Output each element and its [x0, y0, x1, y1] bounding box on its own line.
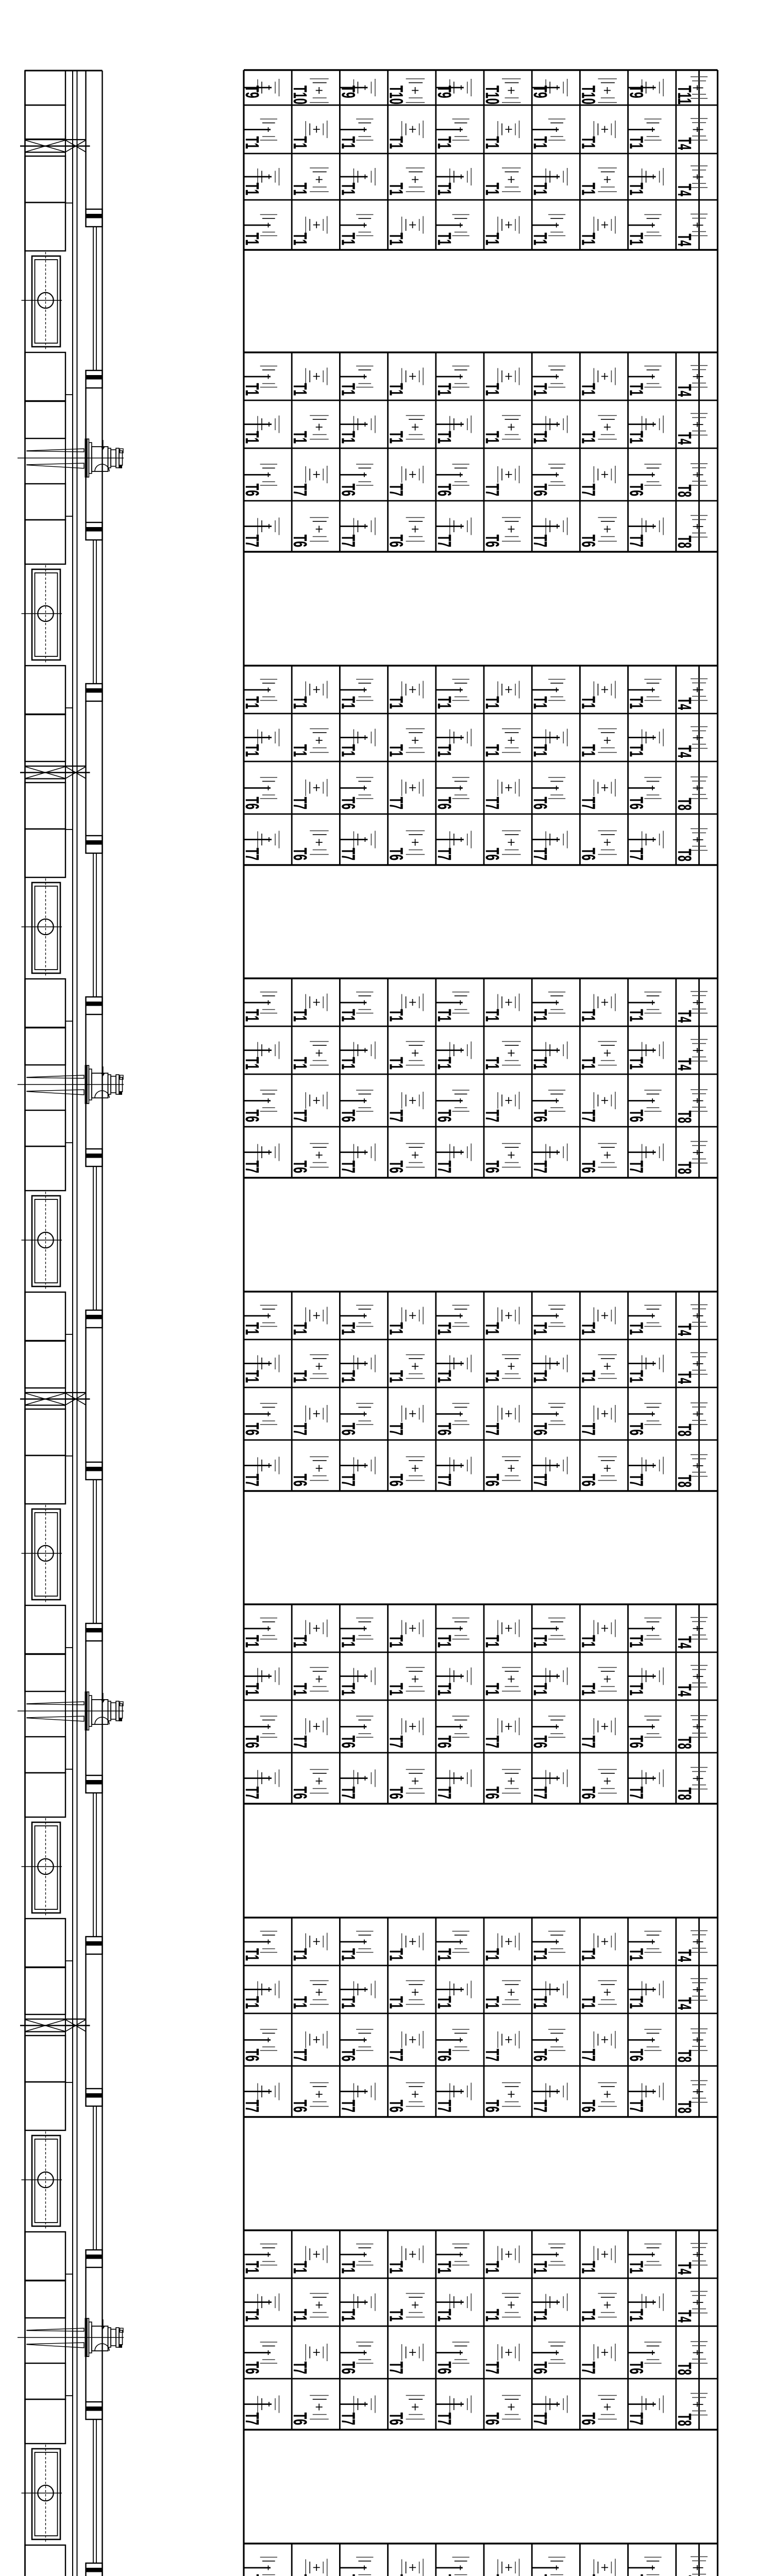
svg-text:T1: T1 [338, 1057, 359, 1070]
svg-text:T6: T6 [626, 1736, 647, 1748]
svg-text:T6: T6 [626, 2049, 647, 2061]
svg-text:T1: T1 [482, 697, 503, 709]
svg-text:T6: T6 [626, 2362, 647, 2374]
svg-text:T1: T1 [338, 2309, 359, 2321]
svg-text:T7: T7 [578, 2049, 599, 2061]
svg-text:T1: T1 [242, 2309, 263, 2321]
svg-text:T6: T6 [434, 2049, 455, 2061]
svg-text:T1: T1 [242, 2574, 263, 2576]
svg-text:T7: T7 [386, 2362, 407, 2374]
svg-text:T1: T1 [626, 2574, 647, 2576]
svg-text:T10: T10 [290, 86, 311, 105]
svg-text:T8: T8 [674, 798, 695, 810]
svg-text:T1: T1 [242, 431, 263, 444]
svg-text:T8: T8 [674, 2050, 695, 2062]
svg-text:T11: T11 [674, 86, 695, 105]
svg-text:T4: T4 [674, 384, 695, 397]
svg-text:T6: T6 [242, 2049, 263, 2061]
svg-text:T1: T1 [290, 1683, 311, 1696]
svg-text:T1: T1 [578, 2574, 599, 2576]
svg-text:T6: T6 [386, 2100, 407, 2112]
svg-text:T1: T1 [242, 2261, 263, 2274]
svg-text:T6: T6 [434, 2362, 455, 2374]
svg-text:T7: T7 [626, 535, 647, 547]
svg-text:T1: T1 [386, 383, 407, 396]
svg-text:T1: T1 [434, 383, 455, 396]
svg-text:T1: T1 [386, 1370, 407, 1383]
svg-text:T1: T1 [434, 1996, 455, 2009]
svg-text:T7: T7 [242, 848, 263, 860]
svg-text:T1: T1 [626, 1683, 647, 1696]
svg-text:T7: T7 [626, 1161, 647, 1173]
svg-text:T1: T1 [434, 2261, 455, 2274]
svg-text:T7: T7 [338, 1161, 359, 1173]
svg-text:T4: T4 [674, 1950, 695, 1962]
svg-text:T1: T1 [434, 1635, 455, 1648]
svg-text:T6: T6 [434, 1110, 455, 1122]
svg-text:T6: T6 [578, 1474, 599, 1486]
svg-text:T1: T1 [626, 137, 647, 149]
svg-text:T1: T1 [578, 431, 599, 444]
svg-text:T7: T7 [482, 1423, 503, 1435]
svg-text:T1: T1 [338, 1996, 359, 2009]
svg-text:T7: T7 [290, 1736, 311, 1748]
svg-text:T7: T7 [290, 1423, 311, 1435]
svg-text:T8: T8 [674, 2101, 695, 2113]
svg-text:T7: T7 [338, 535, 359, 547]
svg-text:T4: T4 [674, 432, 695, 445]
svg-text:T1: T1 [434, 137, 455, 149]
svg-text:T6: T6 [290, 2413, 311, 2425]
svg-text:T1: T1 [578, 1057, 599, 1070]
svg-text:T1: T1 [626, 1009, 647, 1022]
svg-text:T7: T7 [530, 1474, 551, 1486]
svg-text:T7: T7 [242, 2100, 263, 2112]
svg-text:T1: T1 [290, 1948, 311, 1961]
svg-text:T7: T7 [386, 1423, 407, 1435]
svg-text:T1: T1 [482, 1635, 503, 1648]
svg-text:T7: T7 [338, 848, 359, 860]
svg-text:T1: T1 [482, 183, 503, 195]
svg-text:T7: T7 [242, 1787, 263, 1799]
svg-text:T1: T1 [290, 137, 311, 149]
svg-text:T6: T6 [482, 2413, 503, 2425]
svg-text:T6: T6 [578, 1787, 599, 1799]
svg-text:T1: T1 [482, 1057, 503, 1070]
svg-text:T4: T4 [674, 234, 695, 246]
svg-text:T1: T1 [290, 431, 311, 444]
svg-text:T6: T6 [578, 535, 599, 547]
svg-text:T1: T1 [626, 1323, 647, 1335]
svg-text:T6: T6 [242, 1110, 263, 1122]
svg-text:T6: T6 [578, 1161, 599, 1173]
svg-text:T4: T4 [674, 1324, 695, 1336]
svg-text:T1: T1 [386, 183, 407, 195]
svg-text:T1: T1 [242, 1057, 263, 1070]
svg-text:T1: T1 [386, 1683, 407, 1696]
svg-text:T8: T8 [674, 485, 695, 497]
svg-text:T7: T7 [434, 2100, 455, 2112]
svg-text:T1: T1 [530, 1635, 551, 1648]
svg-text:T1: T1 [386, 697, 407, 709]
svg-text:T1: T1 [242, 137, 263, 149]
svg-text:T8: T8 [674, 849, 695, 861]
svg-text:T6: T6 [242, 484, 263, 496]
svg-text:T1: T1 [338, 2574, 359, 2576]
svg-text:T7: T7 [530, 2100, 551, 2112]
svg-text:T7: T7 [242, 2413, 263, 2425]
svg-text:T7: T7 [482, 2049, 503, 2061]
svg-text:T1: T1 [338, 697, 359, 709]
svg-text:T1: T1 [434, 1009, 455, 1022]
svg-text:T1: T1 [578, 697, 599, 709]
svg-text:T4: T4 [674, 745, 695, 758]
svg-text:T1: T1 [578, 233, 599, 245]
svg-text:T4: T4 [674, 1058, 695, 1071]
svg-text:T1: T1 [338, 744, 359, 757]
svg-text:T1: T1 [290, 1370, 311, 1383]
svg-text:T1: T1 [290, 1057, 311, 1070]
svg-text:T6: T6 [290, 1474, 311, 1486]
svg-text:T6: T6 [482, 1787, 503, 1799]
svg-text:T1: T1 [578, 1996, 599, 2009]
svg-text:T7: T7 [482, 2362, 503, 2374]
svg-text:T1: T1 [242, 1370, 263, 1383]
svg-text:T7: T7 [434, 848, 455, 860]
svg-text:T4: T4 [674, 184, 695, 196]
svg-text:T1: T1 [290, 1009, 311, 1022]
svg-text:T7: T7 [530, 535, 551, 547]
svg-text:T6: T6 [434, 797, 455, 809]
svg-text:T7: T7 [482, 484, 503, 496]
svg-text:T1: T1 [338, 1009, 359, 1022]
svg-text:T1: T1 [290, 2574, 311, 2576]
svg-text:T1: T1 [578, 744, 599, 757]
svg-text:T1: T1 [434, 1370, 455, 1383]
svg-text:T1: T1 [290, 2309, 311, 2321]
svg-text:T10: T10 [578, 86, 599, 105]
svg-text:T1: T1 [242, 1323, 263, 1335]
svg-text:T7: T7 [626, 2100, 647, 2112]
svg-text:T7: T7 [386, 484, 407, 496]
svg-text:T1: T1 [530, 1683, 551, 1696]
svg-text:T6: T6 [290, 1161, 311, 1173]
svg-text:T1: T1 [386, 233, 407, 245]
svg-text:T6: T6 [578, 2100, 599, 2112]
svg-text:T4: T4 [674, 1636, 695, 1649]
svg-text:T1: T1 [242, 1996, 263, 2009]
svg-text:T1: T1 [386, 1009, 407, 1022]
svg-text:T1: T1 [386, 431, 407, 444]
svg-text:T4: T4 [674, 2262, 695, 2275]
svg-text:T1: T1 [290, 1635, 311, 1648]
svg-text:T1: T1 [242, 744, 263, 757]
svg-text:T1: T1 [626, 431, 647, 444]
svg-text:T1: T1 [530, 1009, 551, 1022]
svg-text:T6: T6 [434, 1736, 455, 1748]
svg-text:T8: T8 [674, 1424, 695, 1436]
svg-text:T1: T1 [338, 1948, 359, 1961]
svg-text:T6: T6 [386, 1161, 407, 1173]
svg-text:T7: T7 [578, 797, 599, 809]
svg-text:T1: T1 [434, 1057, 455, 1070]
svg-text:T9: T9 [242, 86, 263, 98]
svg-text:T7: T7 [290, 797, 311, 809]
svg-text:T7: T7 [290, 484, 311, 496]
svg-text:T7: T7 [530, 2413, 551, 2425]
svg-text:T1: T1 [530, 1370, 551, 1383]
svg-text:T8: T8 [674, 1162, 695, 1174]
svg-text:T1: T1 [434, 2309, 455, 2321]
svg-text:T1: T1 [434, 1683, 455, 1696]
svg-text:T1: T1 [626, 233, 647, 245]
svg-text:T4: T4 [674, 1684, 695, 1697]
svg-text:T7: T7 [338, 2413, 359, 2425]
svg-text:T7: T7 [578, 1423, 599, 1435]
svg-text:T1: T1 [578, 1009, 599, 1022]
svg-text:T7: T7 [626, 1787, 647, 1799]
svg-text:T6: T6 [338, 484, 359, 496]
svg-text:T8: T8 [674, 1737, 695, 1749]
svg-text:T6: T6 [626, 1423, 647, 1435]
svg-text:T1: T1 [578, 1370, 599, 1383]
svg-text:T1: T1 [530, 2261, 551, 2274]
svg-text:T6: T6 [338, 2049, 359, 2061]
svg-text:T1: T1 [482, 383, 503, 396]
svg-text:T7: T7 [434, 1161, 455, 1173]
svg-text:T6: T6 [530, 1736, 551, 1748]
svg-text:T1: T1 [578, 1948, 599, 1961]
svg-text:T1: T1 [290, 383, 311, 396]
svg-text:T4: T4 [674, 1371, 695, 1384]
svg-text:T7: T7 [434, 535, 455, 547]
svg-text:T7: T7 [434, 1787, 455, 1799]
svg-text:T7: T7 [242, 1474, 263, 1486]
svg-text:T4: T4 [674, 138, 695, 150]
svg-text:T1: T1 [530, 1996, 551, 2009]
svg-text:T6: T6 [482, 1161, 503, 1173]
svg-text:T1: T1 [434, 697, 455, 709]
svg-text:T6: T6 [338, 1736, 359, 1748]
svg-text:T8: T8 [674, 1788, 695, 1800]
svg-text:T1: T1 [482, 137, 503, 149]
svg-text:T10: T10 [386, 86, 407, 105]
svg-text:T7: T7 [290, 1110, 311, 1122]
svg-text:T6: T6 [530, 2049, 551, 2061]
svg-text:T6: T6 [434, 1423, 455, 1435]
svg-text:T1: T1 [530, 2574, 551, 2576]
svg-text:T1: T1 [338, 183, 359, 195]
svg-text:T6: T6 [626, 797, 647, 809]
svg-text:T4: T4 [674, 2310, 695, 2323]
svg-text:T1: T1 [290, 744, 311, 757]
svg-text:T1: T1 [530, 2309, 551, 2321]
svg-text:T1: T1 [530, 1323, 551, 1335]
svg-text:T1: T1 [338, 1635, 359, 1648]
svg-text:T7: T7 [242, 535, 263, 547]
svg-text:T4: T4 [674, 1997, 695, 2010]
svg-text:T1: T1 [578, 1683, 599, 1696]
svg-text:T1: T1 [434, 183, 455, 195]
svg-text:T6: T6 [482, 848, 503, 860]
svg-text:T1: T1 [530, 431, 551, 444]
svg-text:T1: T1 [482, 1370, 503, 1383]
svg-text:T6: T6 [338, 1110, 359, 1122]
svg-text:T1: T1 [530, 1948, 551, 1961]
svg-text:T8: T8 [674, 1475, 695, 1487]
svg-text:T1: T1 [290, 697, 311, 709]
svg-text:T1: T1 [290, 2261, 311, 2274]
svg-text:T1: T1 [290, 183, 311, 195]
svg-text:T7: T7 [386, 1110, 407, 1122]
svg-text:T7: T7 [482, 1110, 503, 1122]
svg-text:T6: T6 [290, 1787, 311, 1799]
svg-text:T1: T1 [482, 2309, 503, 2321]
svg-text:T7: T7 [578, 484, 599, 496]
svg-text:T6: T6 [578, 2413, 599, 2425]
svg-text:T1: T1 [578, 137, 599, 149]
svg-text:T6: T6 [482, 1474, 503, 1486]
svg-text:T7: T7 [386, 1736, 407, 1748]
svg-text:T1: T1 [626, 383, 647, 396]
svg-text:T1: T1 [530, 233, 551, 245]
svg-text:T1: T1 [242, 1948, 263, 1961]
svg-text:T1: T1 [434, 1323, 455, 1335]
svg-text:T9: T9 [434, 86, 455, 98]
svg-text:T9: T9 [338, 86, 359, 98]
svg-text:T1: T1 [338, 2261, 359, 2274]
svg-text:T1: T1 [482, 1683, 503, 1696]
svg-text:T7: T7 [482, 1736, 503, 1748]
svg-text:T6: T6 [338, 797, 359, 809]
svg-text:T1: T1 [386, 2261, 407, 2274]
svg-text:T8: T8 [674, 536, 695, 548]
svg-text:T4: T4 [674, 698, 695, 710]
svg-text:T7: T7 [338, 1474, 359, 1486]
svg-text:T10: T10 [482, 86, 503, 105]
svg-text:T1: T1 [626, 1996, 647, 2009]
svg-text:T8: T8 [674, 1111, 695, 1123]
svg-text:T9: T9 [626, 86, 647, 98]
svg-text:T7: T7 [290, 2362, 311, 2374]
svg-text:T1: T1 [626, 2309, 647, 2321]
svg-text:T1: T1 [578, 183, 599, 195]
svg-text:T1: T1 [626, 2261, 647, 2274]
svg-text:T1: T1 [242, 1683, 263, 1696]
svg-text:T6: T6 [242, 1423, 263, 1435]
svg-text:T6: T6 [290, 2100, 311, 2112]
svg-text:T6: T6 [530, 1110, 551, 1122]
svg-text:T7: T7 [530, 848, 551, 860]
svg-text:T6: T6 [530, 2362, 551, 2374]
svg-text:T7: T7 [434, 1474, 455, 1486]
svg-text:T1: T1 [386, 1948, 407, 1961]
svg-text:T1: T1 [578, 1323, 599, 1335]
svg-text:T1: T1 [482, 2574, 503, 2576]
svg-text:T6: T6 [482, 2100, 503, 2112]
svg-text:T1: T1 [434, 431, 455, 444]
svg-text:T1: T1 [290, 233, 311, 245]
svg-text:T7: T7 [482, 797, 503, 809]
svg-text:T8: T8 [674, 2363, 695, 2375]
svg-text:T1: T1 [578, 2261, 599, 2274]
svg-text:T1: T1 [530, 137, 551, 149]
svg-text:T7: T7 [626, 2413, 647, 2425]
svg-text:T1: T1 [434, 233, 455, 245]
svg-text:T1: T1 [482, 431, 503, 444]
svg-text:T1: T1 [482, 233, 503, 245]
svg-text:T1: T1 [434, 2574, 455, 2576]
svg-text:T6: T6 [530, 484, 551, 496]
svg-text:T6: T6 [626, 1110, 647, 1122]
svg-text:T1: T1 [482, 1996, 503, 2009]
svg-text:T7: T7 [386, 797, 407, 809]
svg-text:T6: T6 [242, 2362, 263, 2374]
svg-text:T6: T6 [434, 484, 455, 496]
svg-text:T7: T7 [338, 1787, 359, 1799]
svg-text:T6: T6 [578, 848, 599, 860]
svg-text:T1: T1 [578, 1635, 599, 1648]
svg-text:T7: T7 [626, 1474, 647, 1486]
svg-text:T6: T6 [386, 1474, 407, 1486]
svg-text:T1: T1 [626, 744, 647, 757]
svg-text:T1: T1 [338, 233, 359, 245]
svg-text:T1: T1 [338, 137, 359, 149]
svg-text:T6: T6 [242, 797, 263, 809]
svg-text:T1: T1 [626, 697, 647, 709]
svg-text:T1: T1 [482, 744, 503, 757]
svg-text:T6: T6 [386, 1787, 407, 1799]
svg-text:T1: T1 [626, 1057, 647, 1070]
svg-text:T1: T1 [530, 183, 551, 195]
svg-text:T1: T1 [386, 1996, 407, 2009]
svg-text:T6: T6 [530, 1423, 551, 1435]
svg-text:T1: T1 [242, 1009, 263, 1022]
svg-text:T7: T7 [578, 1736, 599, 1748]
svg-text:T1: T1 [530, 744, 551, 757]
svg-text:T6: T6 [338, 2362, 359, 2374]
svg-text:T8: T8 [674, 2414, 695, 2426]
svg-text:T1: T1 [386, 744, 407, 757]
svg-text:T6: T6 [242, 1736, 263, 1748]
svg-text:T1: T1 [578, 383, 599, 396]
svg-text:T1: T1 [530, 383, 551, 396]
svg-text:T1: T1 [386, 137, 407, 149]
svg-text:T1: T1 [626, 1948, 647, 1961]
svg-text:T1: T1 [530, 697, 551, 709]
svg-text:T7: T7 [530, 1161, 551, 1173]
svg-text:T1: T1 [338, 383, 359, 396]
svg-text:T1: T1 [242, 383, 263, 396]
svg-text:T6: T6 [482, 535, 503, 547]
svg-text:T1: T1 [386, 1635, 407, 1648]
svg-text:T4: T4 [674, 1010, 695, 1023]
svg-text:T6: T6 [386, 535, 407, 547]
svg-text:T1: T1 [530, 1057, 551, 1070]
svg-text:T7: T7 [578, 2362, 599, 2374]
svg-text:T1: T1 [290, 1323, 311, 1335]
svg-text:T1: T1 [242, 1635, 263, 1648]
svg-text:T7: T7 [434, 2413, 455, 2425]
svg-text:T6: T6 [290, 848, 311, 860]
svg-text:T7: T7 [530, 1787, 551, 1799]
svg-text:T7: T7 [242, 1161, 263, 1173]
svg-text:T1: T1 [434, 1948, 455, 1961]
svg-text:T6: T6 [290, 535, 311, 547]
svg-text:T1: T1 [242, 183, 263, 195]
svg-text:T1: T1 [242, 697, 263, 709]
svg-text:T1: T1 [626, 183, 647, 195]
